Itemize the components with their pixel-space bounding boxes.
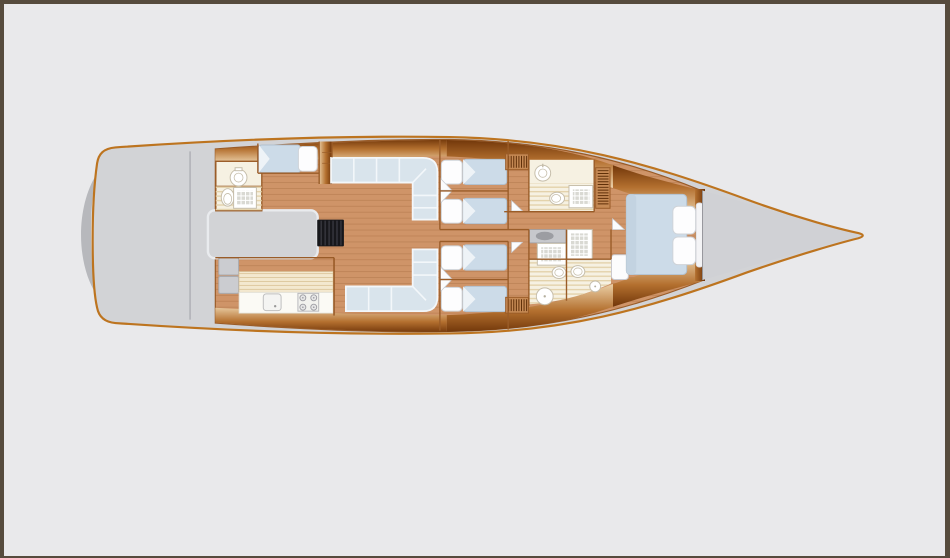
shower — [569, 186, 593, 208]
framed-canvas — [0, 0, 950, 558]
toilet — [221, 189, 234, 206]
sink — [536, 288, 553, 305]
galley-sink — [263, 294, 281, 311]
aft-head — [216, 161, 262, 210]
vanity — [529, 230, 566, 243]
single-bed — [259, 145, 317, 173]
shower — [234, 188, 257, 209]
shower — [537, 243, 566, 265]
sink — [590, 281, 601, 292]
yacht-floor-plan — [4, 4, 945, 556]
galley-counter — [239, 272, 333, 293]
cabinet — [612, 255, 629, 280]
saloon-aft-bulkhead-shading — [319, 142, 332, 185]
slat-locker — [506, 154, 529, 170]
single-bed — [441, 245, 506, 270]
slat-locker — [596, 168, 610, 209]
slat-locker — [506, 297, 529, 313]
shower — [567, 230, 592, 260]
single-bed — [441, 159, 506, 184]
toilet — [552, 267, 566, 279]
galley-locker — [219, 277, 239, 294]
toilet — [571, 266, 585, 278]
single-bed — [441, 286, 506, 311]
stove — [298, 293, 319, 311]
companionway-steps — [317, 220, 344, 247]
headboard — [696, 203, 703, 267]
hull-interior — [93, 137, 863, 334]
bathroom-port-forward — [529, 160, 593, 211]
galley-locker — [219, 258, 239, 275]
foredeck — [703, 190, 858, 280]
toilet — [550, 192, 565, 204]
single-bed — [441, 198, 506, 223]
